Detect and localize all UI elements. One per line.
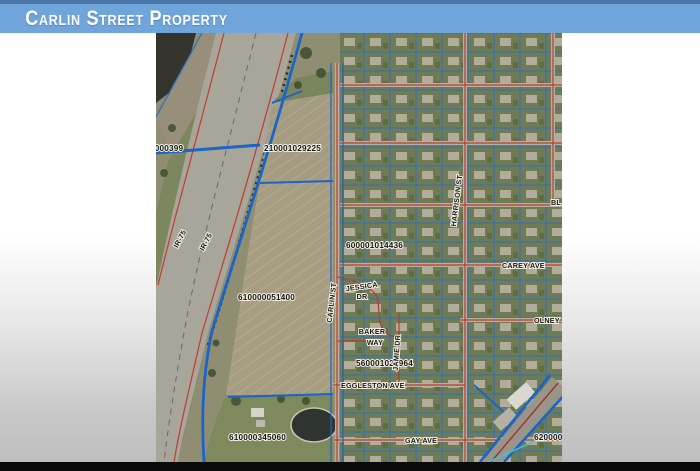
title-banner: Carlin Street Property [0, 0, 700, 33]
street-label-olney: OLNEY [534, 316, 560, 325]
map-viewport[interactable]: 1000399 210001029225 600001014436 610000… [156, 33, 562, 462]
parcel-label: 560001021964 [356, 359, 413, 368]
page-title: Carlin Street Property [0, 4, 588, 32]
parcel-label: 620000 [534, 433, 562, 442]
bottom-bar [0, 462, 700, 471]
street-label-baker-way: WAY [367, 338, 383, 347]
street-label-gay-ave: GAY AVE [405, 436, 437, 445]
street-label-bl-cutoff: BL [551, 198, 561, 207]
parcel-label: 610000051400 [238, 293, 295, 302]
aerial-map: 1000399 210001029225 600001014436 610000… [156, 33, 562, 462]
street-label-carey-ave: CAREY AVE [502, 261, 545, 270]
parcel-label: 610000345060 [229, 433, 286, 442]
parcel-label: 600001014436 [346, 241, 403, 250]
street-label-eggleston-ave: EGGLESTON AVE [341, 381, 405, 390]
parcel-label: 1000399 [156, 144, 184, 153]
parcel-label: 210001029225 [264, 144, 321, 153]
street-label-baker: BAKER [359, 327, 386, 336]
page: Carlin Street Property [0, 0, 700, 471]
street-label-jessica-dr: DR [357, 292, 368, 301]
